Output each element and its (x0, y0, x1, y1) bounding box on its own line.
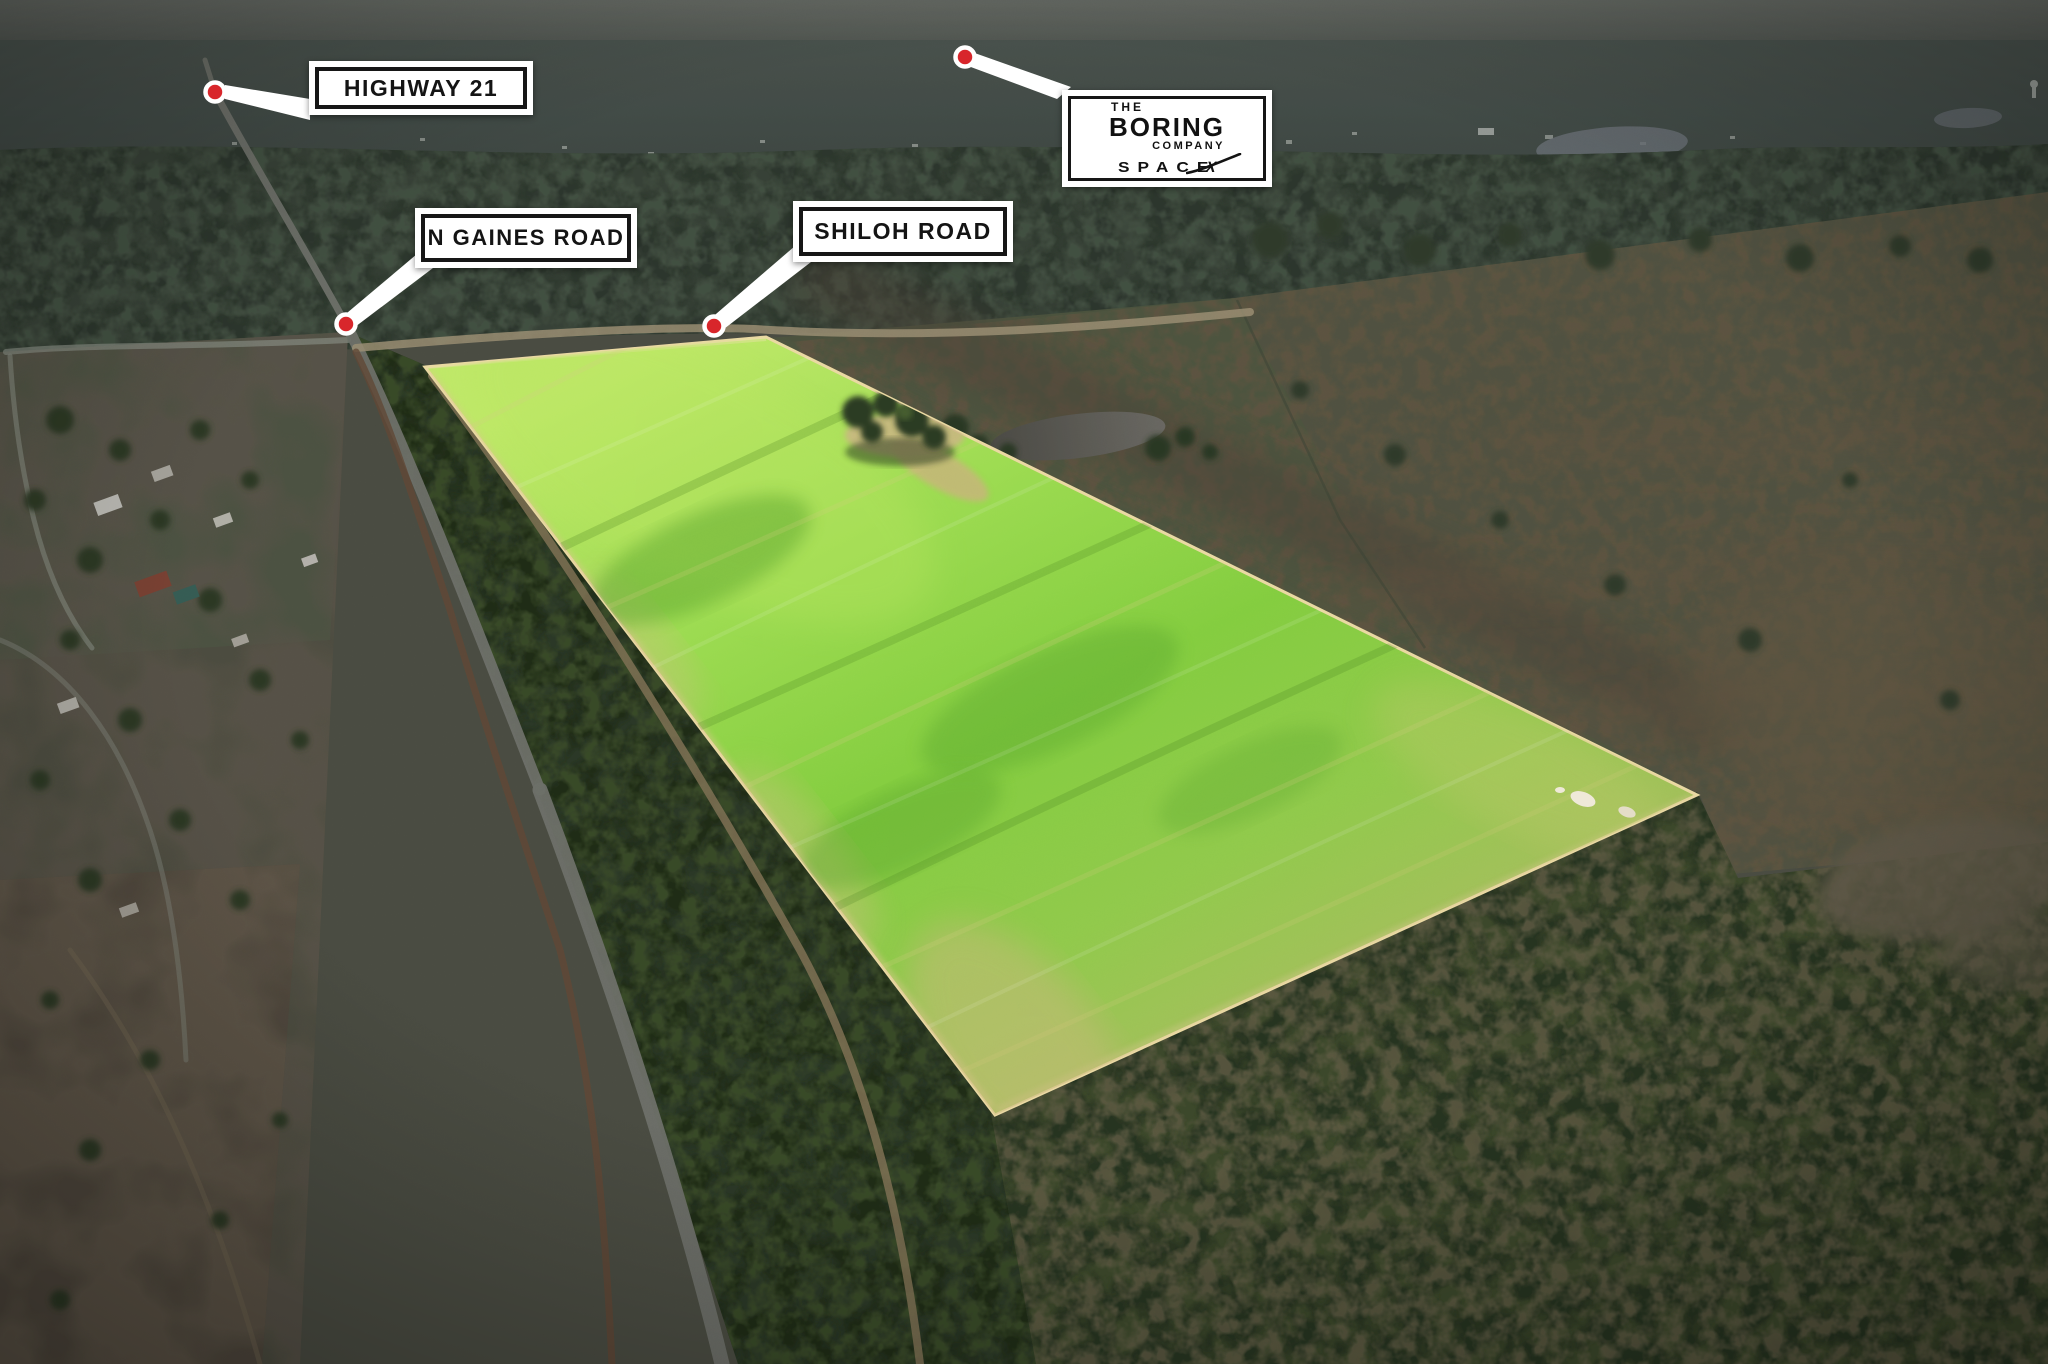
boring-company-company: COMPANY (1109, 141, 1225, 152)
road-label-n-gaines-road: N GAINES ROAD (415, 208, 637, 268)
company-logo-card: THE BORING COMPANY SPACE X (1062, 90, 1272, 187)
boring-company-wordmark: THE BORING COMPANY (1109, 101, 1225, 152)
road-label-n-gaines-road-text: N GAINES ROAD (421, 214, 631, 262)
aerial-property-photo: HIGHWAY 21 N GAINES ROAD SHILOH ROAD THE… (0, 0, 2048, 1364)
boring-company-boring: BORING (1109, 114, 1225, 140)
road-label-highway-21-text: HIGHWAY 21 (315, 67, 527, 109)
road-label-shiloh-road-text: SHILOH ROAD (799, 207, 1007, 256)
terrain-photo (0, 0, 2048, 1364)
spacex-swoosh-icon (1186, 153, 1242, 175)
spacex-wordmark: SPACE X (1118, 159, 1216, 176)
road-label-shiloh-road: SHILOH ROAD (793, 201, 1013, 262)
road-label-highway-21: HIGHWAY 21 (309, 61, 533, 115)
company-logo-card-frame: THE BORING COMPANY SPACE X (1068, 96, 1266, 181)
